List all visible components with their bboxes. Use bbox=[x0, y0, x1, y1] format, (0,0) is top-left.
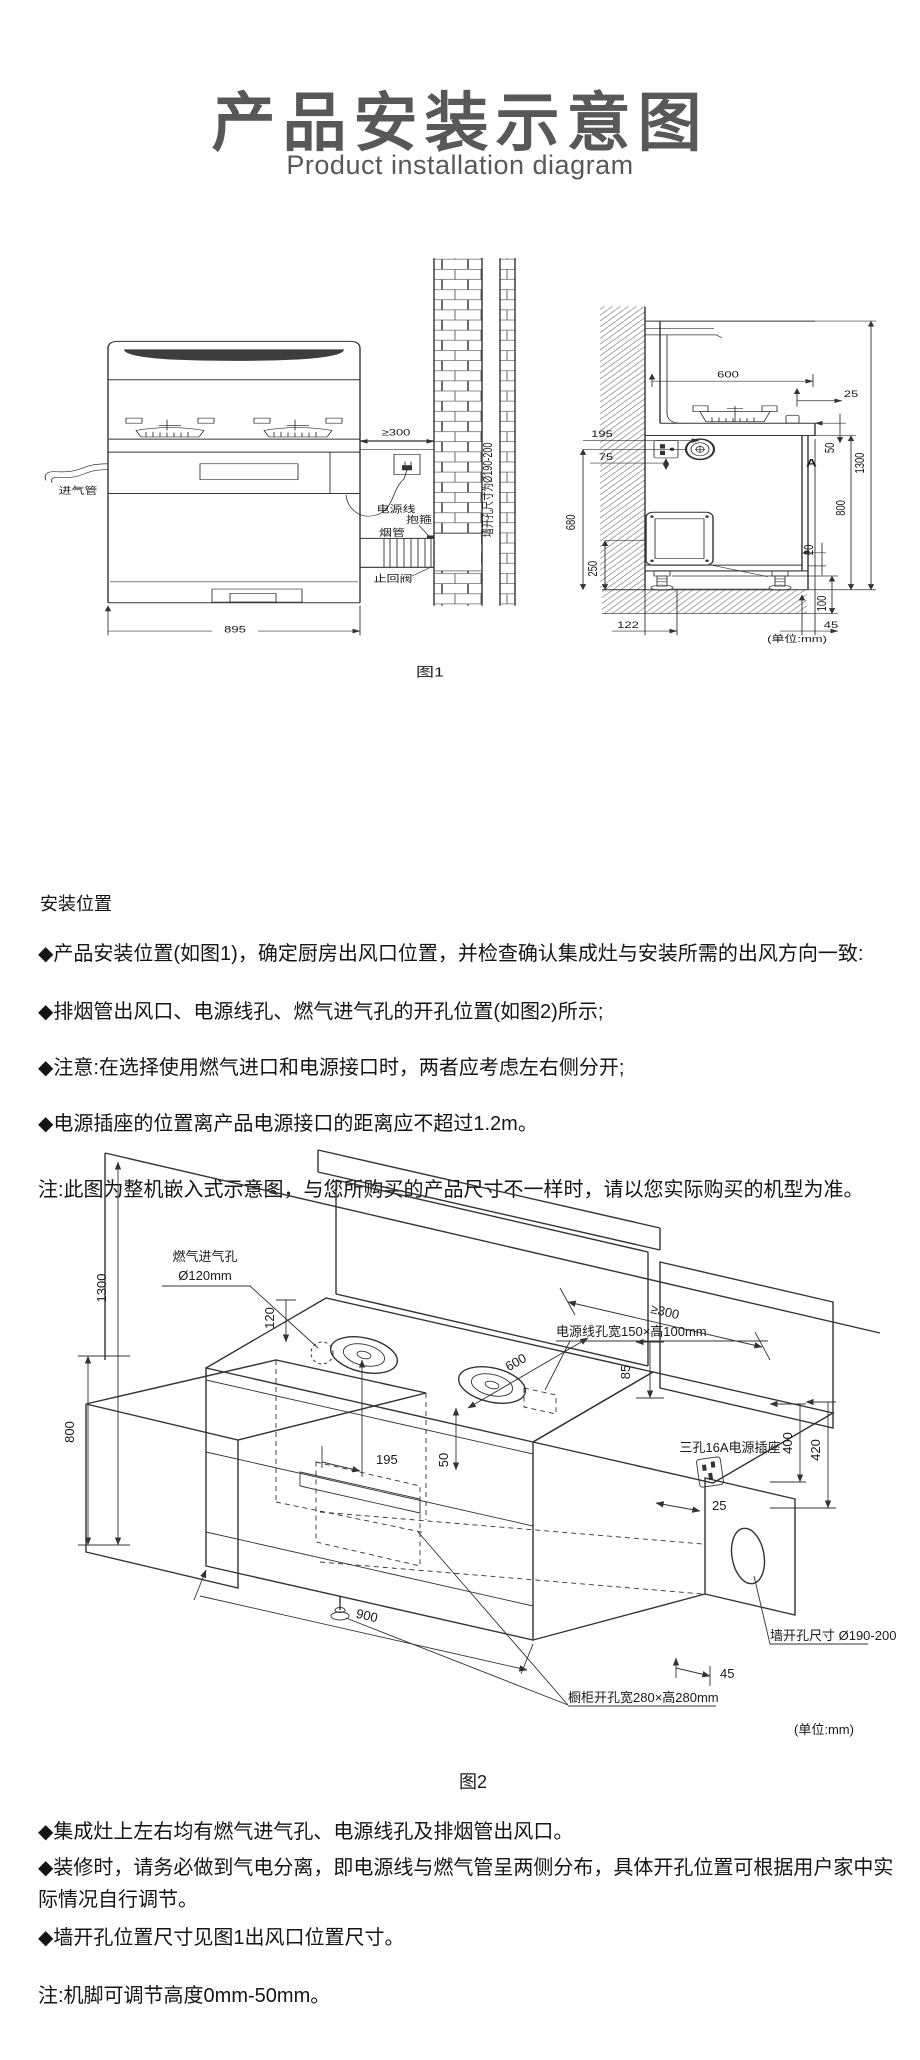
dim2-120: 120 bbox=[262, 1307, 277, 1329]
label-cabinet-hole: 橱柜开孔宽280×高280mm bbox=[568, 1690, 719, 1705]
install-bullet-4: ◆电源插座的位置离产品电源接口的距离应不超过1.2m。 bbox=[38, 1108, 894, 1140]
power-hole-dashed bbox=[524, 1388, 556, 1414]
label-check-valve: 止回阀 bbox=[374, 573, 413, 585]
dim-195: 195 bbox=[591, 430, 613, 440]
dim2-25: 25 bbox=[712, 1498, 726, 1513]
adjustable-feet bbox=[651, 571, 791, 590]
install-bullet-2: ◆排烟管出风口、电源线孔、燃气进气孔的开孔位置(如图2)所示; bbox=[38, 996, 894, 1028]
floor-hatch bbox=[602, 590, 807, 614]
dim-45: 45 bbox=[824, 621, 838, 631]
install-bullet-1: ◆产品安装位置(如图1)，确定厨房出风口位置，并检查确认集成灶与安装所需的出风方… bbox=[38, 938, 894, 970]
hidden-cutout bbox=[316, 1462, 420, 1566]
unit-note-fig1: (单位:mm) bbox=[767, 633, 827, 645]
isometric-view: 1300 800 bbox=[62, 1150, 896, 1706]
dim-width-895: 895 bbox=[224, 625, 246, 635]
dim-100: 100 bbox=[816, 596, 830, 612]
gas-valve-icon bbox=[686, 439, 714, 459]
bottom-bullet-1: ◆集成灶上左右均有燃气进气孔、电源线孔及排烟管出风口。 bbox=[38, 1816, 894, 1848]
dim-50: 50 bbox=[824, 443, 838, 453]
dim-250: 250 bbox=[587, 561, 601, 577]
brick-wall bbox=[434, 258, 515, 606]
dim2-420: 420 bbox=[808, 1439, 823, 1461]
dim2-45: 45 bbox=[720, 1666, 734, 1681]
figure1-drawing: ≥300 895 进气管 电源线 抱箍 烟管 止回阀 墙开孔尺寸为Ø190-20… bbox=[0, 240, 920, 870]
gas-hole-dashed-circle bbox=[311, 1342, 333, 1364]
dim-600: 600 bbox=[717, 370, 739, 380]
flue-opening bbox=[646, 512, 768, 576]
adjustable-foot bbox=[331, 1596, 349, 1620]
label-smoke-pipe: 烟管 bbox=[379, 527, 405, 539]
label-power-cord: 电源线 bbox=[377, 503, 416, 515]
label-wall-hole: 墙开孔尺寸 Ø190-200 bbox=[770, 1628, 896, 1643]
burner-right bbox=[254, 418, 342, 437]
dim2-400: 400 bbox=[780, 1432, 795, 1454]
label-socket: 三孔16A电源插座 bbox=[679, 1440, 780, 1455]
label-clamp: 抱箍 bbox=[406, 514, 432, 526]
dim2-300: ≥300 bbox=[649, 1301, 680, 1322]
side-view: 195 75 680 250 600 25 50 800 1300 20 100 bbox=[565, 307, 876, 636]
ignition-box bbox=[786, 415, 799, 423]
socket-icon bbox=[654, 441, 678, 470]
bottom-note: 注:机脚可调节高度0mm-50mm。 bbox=[38, 1980, 894, 2012]
dim-800: 800 bbox=[835, 500, 849, 516]
figure1-caption: 图1 bbox=[416, 666, 444, 680]
glass-lens bbox=[124, 349, 344, 361]
dim-25: 25 bbox=[844, 390, 858, 400]
clamp-mark bbox=[427, 535, 434, 538]
page-subtitle: Product installation diagram bbox=[0, 150, 920, 181]
unit-note-fig2: (单位:mm) bbox=[794, 1722, 854, 1737]
dim2-1300: 1300 bbox=[94, 1274, 109, 1303]
wall-hatch bbox=[600, 307, 645, 590]
bottom-bullet-2: ◆装修时，请务必做到气电分离，即电源线与燃气管呈两侧分布，具体开孔位置可根据用户… bbox=[38, 1852, 894, 1916]
burner-section bbox=[693, 406, 777, 422]
dim2-195: 195 bbox=[376, 1452, 398, 1467]
dim2-50: 50 bbox=[436, 1453, 451, 1467]
dim-122: 122 bbox=[617, 621, 639, 631]
power-socket-icon bbox=[394, 454, 420, 474]
label-power-hole: 电源线孔宽150×高100mm bbox=[556, 1324, 707, 1339]
flue-hole-circle bbox=[727, 1526, 768, 1587]
dim-20: 20 bbox=[803, 545, 817, 555]
dim2-800: 800 bbox=[62, 1421, 77, 1443]
dim-680: 680 bbox=[565, 515, 579, 531]
figure2-caption: 图2 bbox=[459, 1772, 487, 1792]
gas-inlet-pipe bbox=[45, 464, 108, 483]
install-heading: 安装位置 bbox=[40, 890, 112, 916]
dim-1300: 1300 bbox=[854, 453, 868, 474]
smoke-pipe bbox=[360, 535, 434, 567]
dim-gap-wall: ≥300 bbox=[382, 428, 411, 438]
mark-A: A bbox=[806, 457, 817, 469]
figure2-drawing: 1300 800 bbox=[0, 1140, 920, 1800]
burner-1 bbox=[327, 1331, 401, 1379]
wall-hole bbox=[435, 533, 481, 571]
manual-page: 产品安装示意图 Product installation diagram bbox=[0, 0, 920, 2060]
bottom-bullet-3: ◆墙开孔位置尺寸见图1出风口位置尺寸。 bbox=[38, 1922, 894, 1954]
label-gas-hole-2: Ø120mm bbox=[178, 1268, 231, 1283]
dim-75: 75 bbox=[599, 453, 613, 463]
label-gas-hole-1: 燃气进气孔 bbox=[172, 1249, 237, 1264]
label-wall-hole-size: 墙开孔尺寸为Ø190-200 bbox=[479, 443, 495, 538]
front-view: ≥300 895 进气管 电源线 抱箍 烟管 止回阀 墙开孔尺寸为Ø190-20… bbox=[45, 258, 515, 635]
dim2-85: 85 bbox=[618, 1365, 633, 1379]
label-gas-inlet: 进气管 bbox=[59, 485, 98, 497]
install-bullet-3: ◆注意:在选择使用燃气进口和电源接口时，两者应考虑左右侧分开; bbox=[38, 1052, 894, 1084]
burner-left bbox=[126, 418, 214, 437]
dim2-600: 600 bbox=[503, 1350, 529, 1374]
